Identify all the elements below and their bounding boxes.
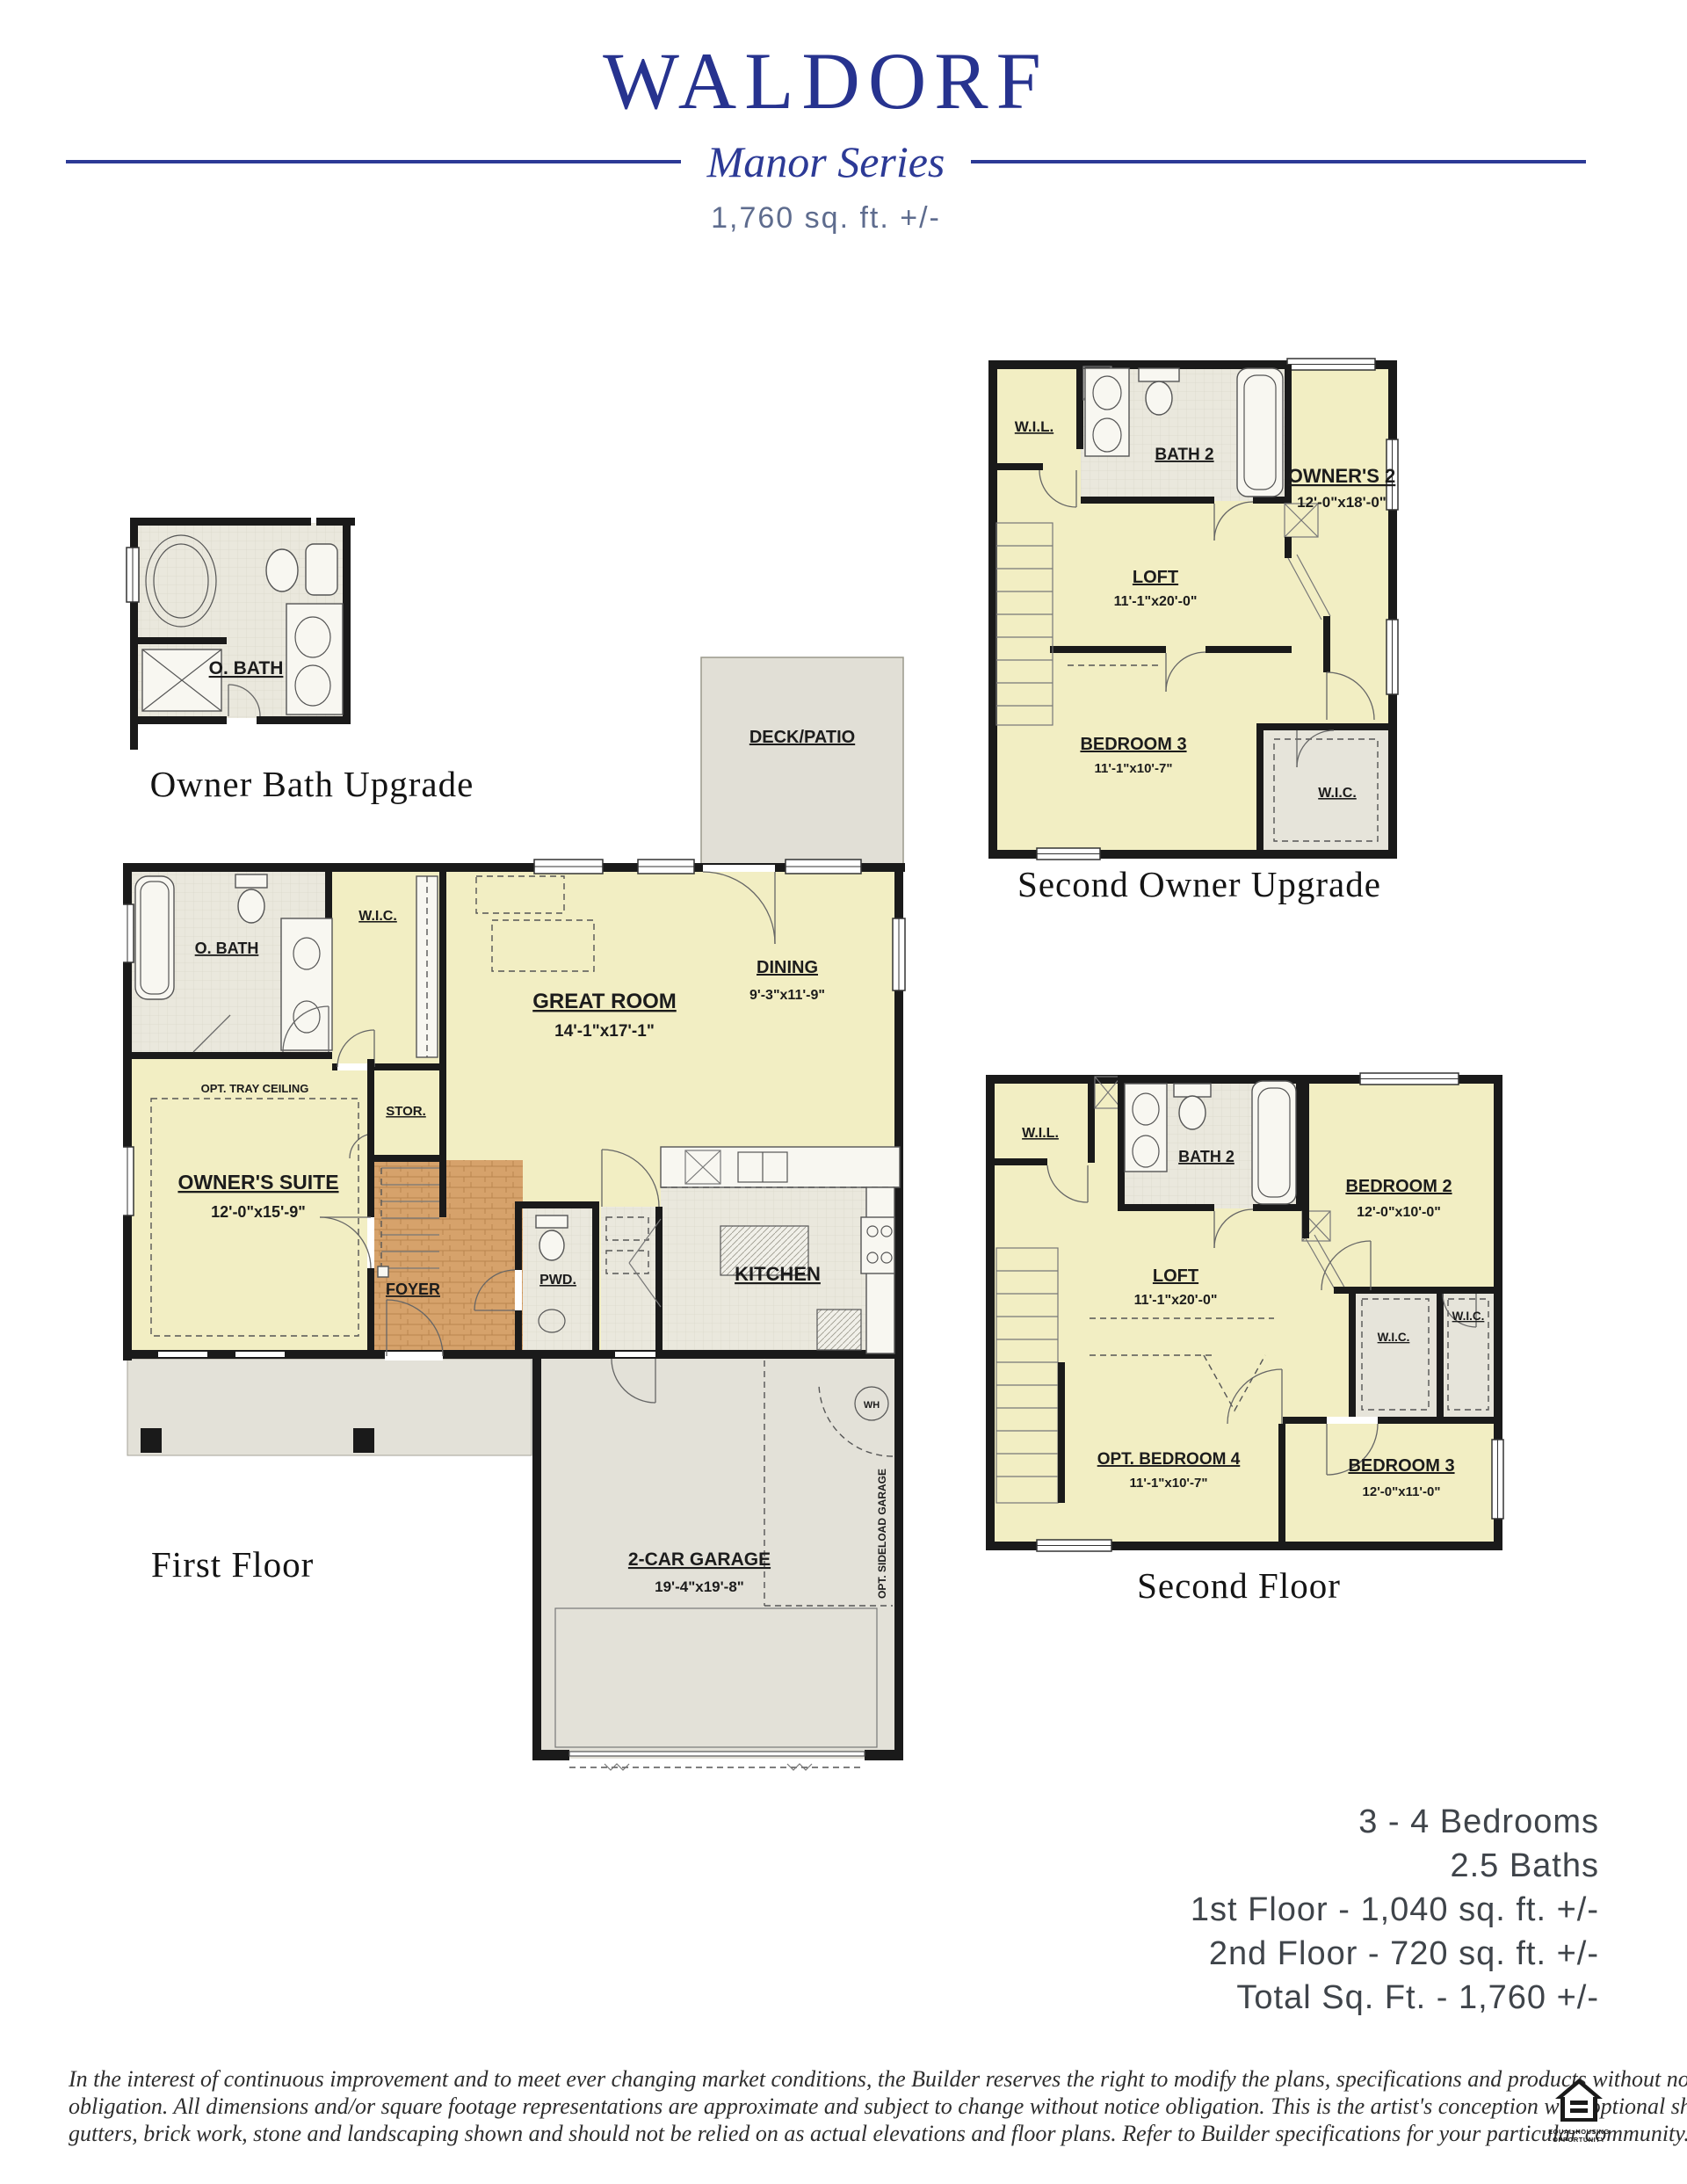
second-floor-plan: W.I.L. BATH 2 BEDROOM 2 12'-0"x10'-0" xyxy=(984,1046,1511,1560)
eho-text-line1: EQUAL HOUSING xyxy=(1548,2128,1610,2136)
series-subtitle: Manor Series xyxy=(681,136,972,187)
spec-summary: 3 - 4 Bedrooms 2.5 Baths 1st Floor - 1,0… xyxy=(1191,1800,1599,2020)
room-label-great: GREAT ROOM xyxy=(532,990,677,1013)
caption-second-owner-upgrade: Second Owner Upgrade xyxy=(988,863,1410,905)
caption-second-floor: Second Floor xyxy=(1046,1564,1432,1607)
room-label-wic1: W.I.C. xyxy=(1378,1331,1410,1344)
room-label-bath2-sf: BATH 2 xyxy=(1178,1148,1234,1165)
disclaimer-line-2: obligation. All dimensions and/or square… xyxy=(69,2093,1545,2120)
label-water-heater: WH xyxy=(864,1400,880,1411)
series-rule-left xyxy=(66,160,681,163)
room-dim-dining: 9'-3"x11'-9" xyxy=(749,988,825,1003)
room-label-foyer: FOYER xyxy=(386,1281,440,1298)
room-dim-great: 14'-1"x17'-1" xyxy=(554,1022,655,1041)
room-label-kitchen: KITCHEN xyxy=(735,1263,821,1285)
room-label-bedroom2: BEDROOM 2 xyxy=(1345,1177,1452,1196)
spec-total-sqft: Total Sq. Ft. - 1,760 +/- xyxy=(1191,1976,1599,2020)
room-label-wic-ff: W.I.C. xyxy=(358,909,397,924)
spec-baths: 2.5 Baths xyxy=(1191,1844,1599,1888)
room-label-wil: W.I.L. xyxy=(1015,418,1053,435)
room-dim-loft: 11'-1"x20'-0" xyxy=(1114,594,1198,609)
room-dim-owners2: 12'-0"x18'-0" xyxy=(1297,494,1387,511)
room-label-wic2: W.I.C. xyxy=(1452,1310,1485,1323)
room-label-bedroom3-sf: BEDROOM 3 xyxy=(1348,1456,1454,1476)
series-rule-right xyxy=(971,160,1586,163)
spec-second-floor-sqft: 2nd Floor - 720 sq. ft. +/- xyxy=(1191,1932,1599,1976)
brochure-page: WALDORF Manor Series 1,760 sq. ft. +/- xyxy=(0,0,1687,2184)
disclaimer-line-3: gutters, brick work, stone and landscapi… xyxy=(69,2120,1545,2147)
total-sqft-subtitle: 1,760 sq. ft. +/- xyxy=(66,201,1586,236)
room-label-bedroom4: OPT. BEDROOM 4 xyxy=(1097,1450,1241,1469)
room-dim-bedroom2: 12'-0"x10'-0" xyxy=(1357,1205,1441,1220)
room-dim-bedroom4: 11'-1"x10'-7" xyxy=(1130,1476,1208,1491)
header: WALDORF Manor Series 1,760 sq. ft. +/- xyxy=(66,39,1586,236)
room-label-bedroom3: BEDROOM 3 xyxy=(1080,735,1186,754)
first-floor-plan: DECK/PATIO xyxy=(123,655,909,1775)
room-label-dining: DINING xyxy=(757,958,818,977)
caption-first-floor: First Floor xyxy=(151,1543,314,1585)
room-label-wil-sf: W.I.L. xyxy=(1022,1126,1059,1141)
room-label-deck: DECK/PATIO xyxy=(749,728,855,747)
room-label-wic: W.I.C. xyxy=(1318,786,1357,801)
label-opt-sideload-garage: OPT. SIDELOAD GARAGE xyxy=(876,1469,888,1599)
room-dim-loft-sf: 11'-1"x20'-0" xyxy=(1134,1293,1218,1308)
second-owner-upgrade-plan: W.I.L. BATH 2 OWNER'S 2 12'-0"x18'-0" LO… xyxy=(984,356,1410,866)
room-dim-bedroom3: 11'-1"x10'-7" xyxy=(1095,761,1173,776)
spec-first-floor-sqft: 1st Floor - 1,040 sq. ft. +/- xyxy=(1191,1888,1599,1932)
room-label-suite: OWNER'S SUITE xyxy=(177,1171,338,1194)
room-label-owners2: OWNER'S 2 xyxy=(1288,465,1396,487)
room-label-obath: O. BATH xyxy=(195,940,259,957)
page-title: WALDORF xyxy=(66,39,1586,124)
label-tray-ceiling: OPT. TRAY CEILING xyxy=(201,1082,309,1095)
room-label-pwd: PWD. xyxy=(539,1273,576,1288)
series-row: Manor Series xyxy=(66,136,1586,187)
room-dim-garage: 19'-4"x19'-8" xyxy=(655,1578,744,1595)
disclaimer-line-1: In the interest of continuous improvemen… xyxy=(69,2065,1545,2093)
equal-housing-house-icon xyxy=(1552,2078,1606,2123)
room-dim-bedroom3-sf: 12'-0"x11'-0" xyxy=(1363,1484,1441,1499)
room-label-loft: LOFT xyxy=(1133,568,1178,587)
room-label-loft-sf: LOFT xyxy=(1153,1266,1198,1286)
equal-housing-logo: EQUAL HOUSING OPPORTUNITY xyxy=(1548,2078,1610,2144)
disclaimer: In the interest of continuous improvemen… xyxy=(69,2065,1545,2147)
room-label-garage: 2-CAR GARAGE xyxy=(628,1549,771,1570)
room-dim-suite: 12'-0"x15'-9" xyxy=(211,1203,306,1221)
eho-text-line2: OPPORTUNITY xyxy=(1548,2136,1610,2144)
spec-bedrooms: 3 - 4 Bedrooms xyxy=(1191,1800,1599,1844)
room-label-bath2: BATH 2 xyxy=(1155,446,1213,464)
room-label-stor: STOR. xyxy=(386,1104,426,1119)
